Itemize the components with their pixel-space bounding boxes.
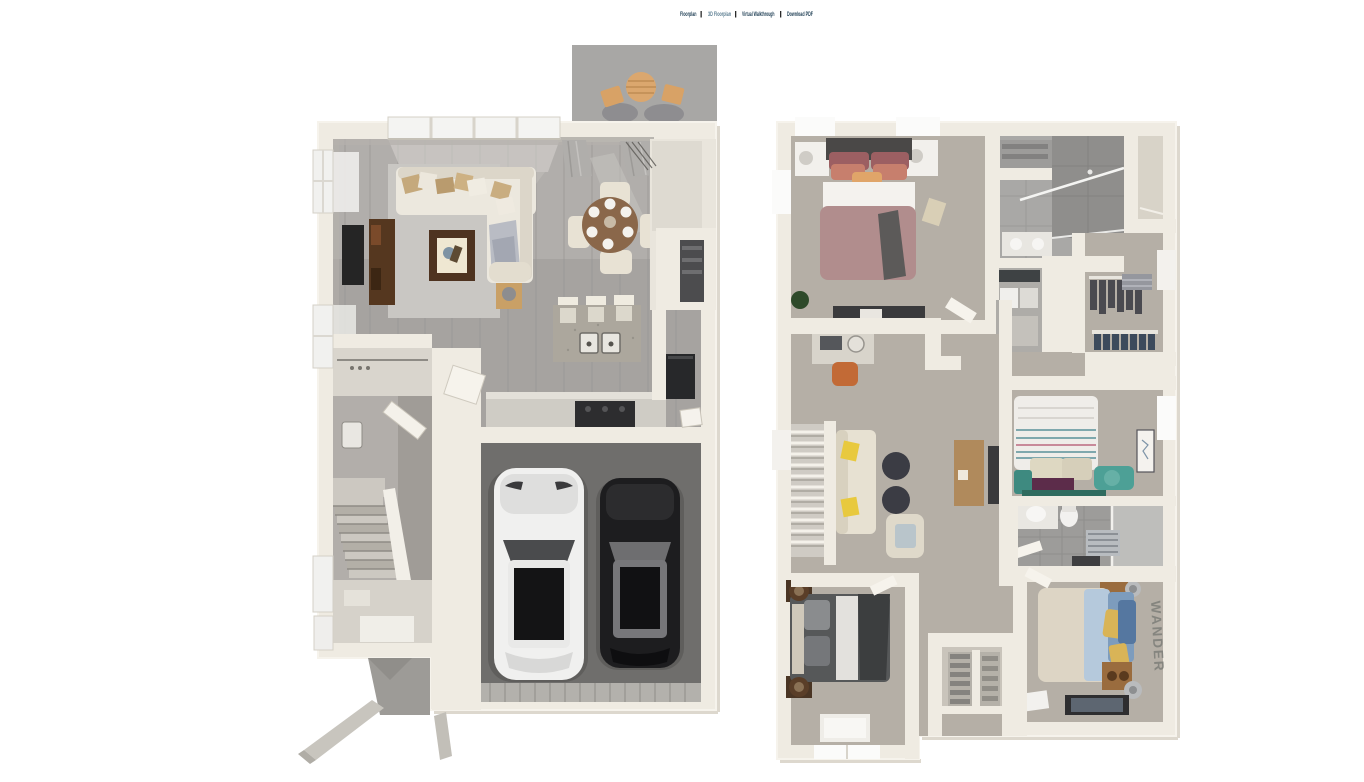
svg-text:Virtual Walkthrough: Virtual Walkthrough xyxy=(742,12,775,18)
svg-text:Floorplan: Floorplan xyxy=(680,12,697,18)
svg-text:3D Floorplan: 3D Floorplan xyxy=(708,12,731,18)
svg-text:Download PDF: Download PDF xyxy=(787,12,813,18)
